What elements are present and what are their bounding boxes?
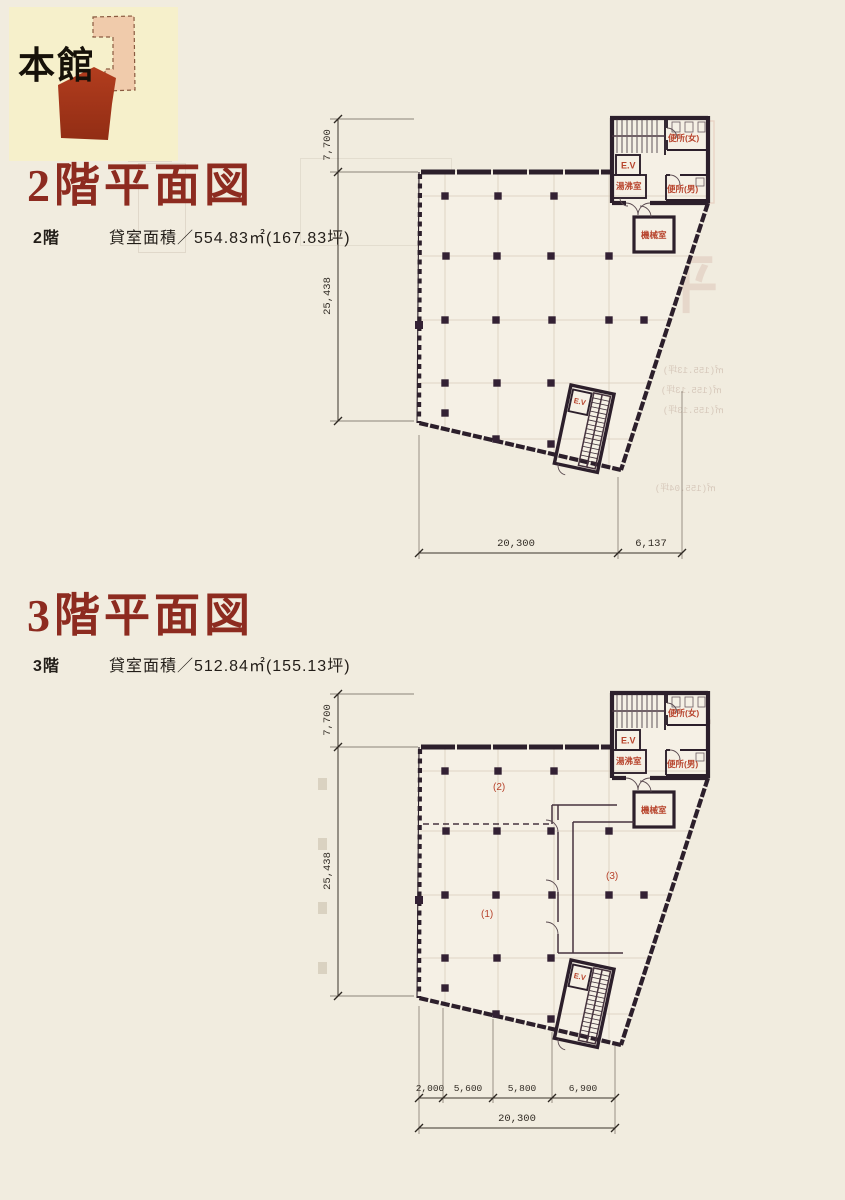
floor-plan-2f: 平面図 ㎡(155.13坪) ㎡(155.13坪) ㎡(155.13坪) ㎡(1… (310, 95, 730, 595)
floor3-caption: 3階貸室面積／512.84㎡(155.13坪) (33, 652, 351, 676)
room-label-wc-men-2f: 便所(男) (667, 184, 698, 194)
dim-width-total-3f: 20,300 (498, 1113, 536, 1125)
brochure-page: 本館 2階平面図 2階貸室面積／554.83㎡(167.83坪) 平面図 ㎡(1… (0, 0, 845, 1200)
dim-width-main-2f: 20,300 (497, 538, 535, 550)
key-card-label: 本館 (18, 35, 96, 89)
floor3-label: 3階 (33, 652, 109, 676)
dim-seg1-3f: 2,000 (416, 1083, 445, 1094)
svg-text:㎡(155.13坪): ㎡(155.13坪) (661, 385, 722, 396)
room-label-machine-3f: 機械室 (641, 805, 667, 815)
floor2-title: 2階平面図 (27, 163, 254, 209)
dim-depth-core-3f: 7,700 (322, 704, 334, 736)
svg-text:㎡(155.04坪): ㎡(155.04坪) (655, 483, 716, 494)
room-label-kettle-2f: 湯沸室 (616, 181, 642, 191)
building-key-card: 本館 (9, 7, 178, 161)
room-label-wc-women-2f: 便所(女) (668, 133, 699, 143)
dim-depth-main-2f: 25,438 (322, 277, 334, 315)
room-label-elevator-3f: E.V (621, 736, 636, 746)
dim-seg2-3f: 5,600 (454, 1083, 483, 1094)
room-label-wc-women-3f: 便所(女) (668, 708, 699, 718)
floor3-title: 3階平面図 (27, 593, 254, 639)
room-label-wc-men-3f: 便所(男) (667, 759, 698, 769)
floor2-caption: 2階貸室面積／554.83㎡(167.83坪) (33, 224, 351, 248)
dim-width-right-2f: 6,137 (635, 538, 667, 550)
svg-text:㎡(155.13坪): ㎡(155.13坪) (663, 405, 724, 416)
zone-label-3: (3) (606, 871, 618, 882)
room-label-machine-2f: 機械室 (641, 230, 667, 240)
floor2-label: 2階 (33, 224, 109, 248)
dim-seg4-3f: 6,900 (569, 1083, 598, 1094)
zone-label-2: (2) (493, 782, 505, 793)
zone-label-1: (1) (481, 909, 493, 920)
dim-seg3-3f: 5,800 (508, 1083, 537, 1094)
svg-text:㎡(155.13坪): ㎡(155.13坪) (663, 365, 724, 376)
dim-depth-main-3f: 25,438 (322, 852, 334, 890)
room-label-elevator-2f: E.V (621, 161, 636, 171)
dim-depth-core-2f: 7,700 (322, 129, 334, 161)
room-label-kettle-3f: 湯沸室 (616, 756, 642, 766)
floor-plan-3f: ㎡(155.13坪) ㎡(155.04坪) (310, 670, 730, 1175)
